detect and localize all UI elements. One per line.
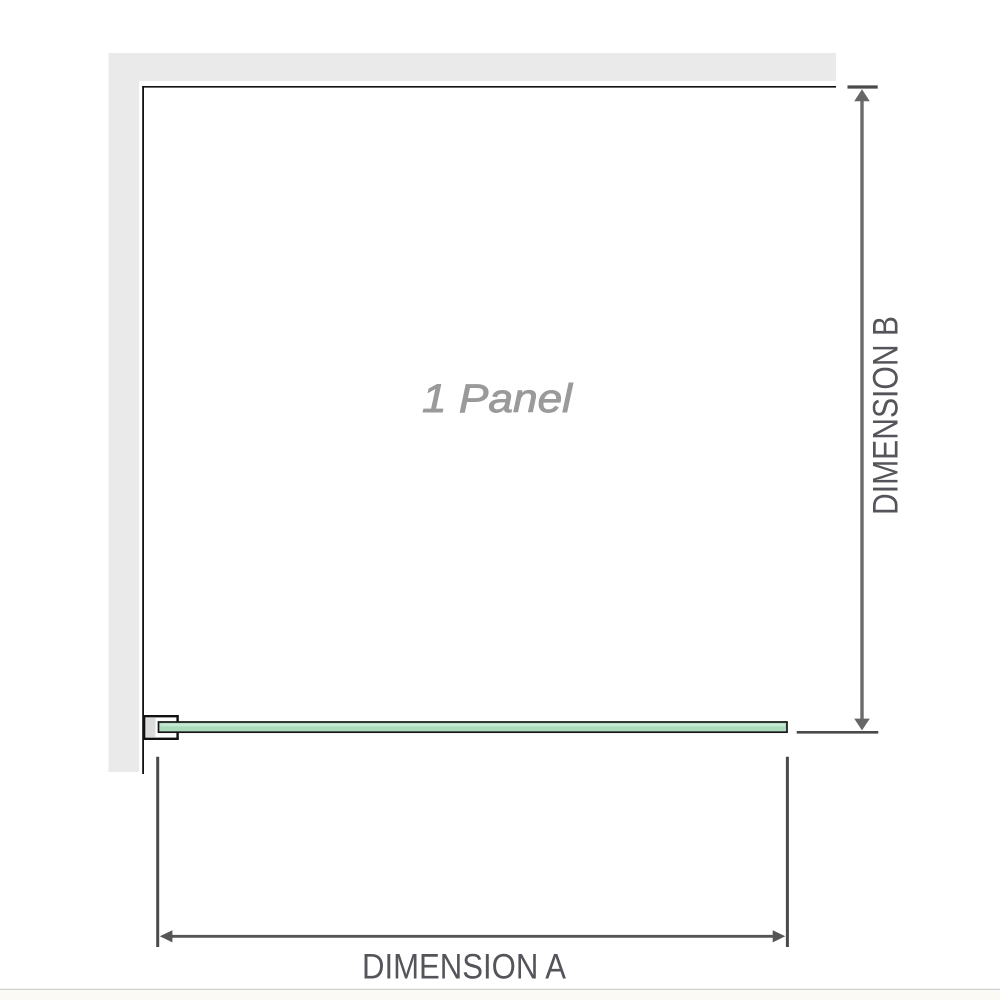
svg-text:DIMENSION A: DIMENSION A [362, 947, 566, 987]
svg-text:DIMENSION B: DIMENSION B [866, 316, 906, 515]
svg-text:1 Panel: 1 Panel [422, 377, 573, 421]
